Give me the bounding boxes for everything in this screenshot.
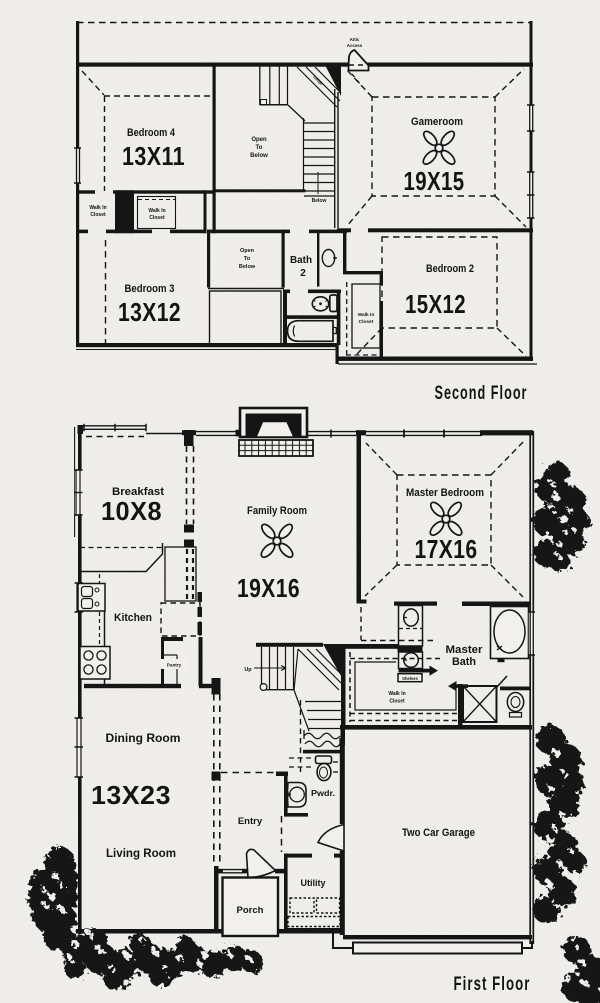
svg-text:Entry: Entry bbox=[238, 816, 263, 827]
svg-text:Closet: Closet bbox=[359, 319, 374, 325]
svg-text:17X16: 17X16 bbox=[415, 536, 478, 564]
svg-text:Bath: Bath bbox=[452, 656, 476, 668]
svg-text:Pwdr.: Pwdr. bbox=[311, 789, 335, 798]
svg-text:Access: Access bbox=[347, 43, 363, 48]
svg-text:Dining Room: Dining Room bbox=[106, 731, 181, 745]
svg-text:Walk In: Walk In bbox=[388, 691, 405, 697]
svg-text:Open: Open bbox=[240, 248, 255, 254]
svg-text:Below: Below bbox=[239, 264, 256, 270]
svg-text:Second Floor: Second Floor bbox=[435, 383, 528, 404]
svg-text:Master: Master bbox=[446, 644, 484, 656]
svg-text:Family Room: Family Room bbox=[247, 505, 307, 517]
svg-text:Breakfast: Breakfast bbox=[112, 486, 164, 498]
svg-text:Bedroom 2: Bedroom 2 bbox=[426, 263, 474, 275]
svg-text:Walk In: Walk In bbox=[89, 205, 106, 211]
svg-text:Walk In: Walk In bbox=[148, 208, 165, 214]
svg-text:13X12: 13X12 bbox=[118, 299, 181, 327]
svg-text:Bedroom 4: Bedroom 4 bbox=[127, 127, 176, 139]
svg-text:19X15: 19X15 bbox=[404, 168, 465, 196]
svg-text:Pantry: Pantry bbox=[167, 663, 182, 668]
svg-text:First Floor: First Floor bbox=[454, 974, 531, 995]
svg-text:To: To bbox=[244, 256, 251, 262]
svg-text:10X8: 10X8 bbox=[101, 498, 162, 526]
svg-text:13X23: 13X23 bbox=[91, 782, 171, 810]
svg-text:Closet: Closet bbox=[149, 215, 165, 221]
svg-text:19X16: 19X16 bbox=[237, 575, 300, 603]
svg-text:Living Room: Living Room bbox=[106, 846, 176, 860]
svg-text:Walk In: Walk In bbox=[358, 312, 375, 318]
svg-text:Two Car Garage: Two Car Garage bbox=[402, 827, 475, 839]
svg-text:13X11: 13X11 bbox=[122, 143, 185, 171]
svg-text:Bedroom 3: Bedroom 3 bbox=[125, 283, 175, 295]
svg-text:Shelves: Shelves bbox=[402, 676, 419, 681]
svg-text:Closet: Closet bbox=[90, 212, 106, 218]
svg-text:2: 2 bbox=[300, 268, 306, 279]
svg-text:15X12: 15X12 bbox=[405, 291, 466, 319]
svg-text:Gameroom: Gameroom bbox=[411, 116, 463, 128]
svg-text:Below: Below bbox=[250, 153, 268, 159]
svg-text:Closet: Closet bbox=[389, 699, 405, 705]
svg-text:Kitchen: Kitchen bbox=[114, 612, 152, 624]
svg-text:Utility: Utility bbox=[300, 878, 325, 888]
svg-text:Bath: Bath bbox=[290, 255, 312, 266]
svg-text:Below: Below bbox=[312, 198, 327, 204]
svg-text:Open: Open bbox=[251, 137, 267, 143]
svg-text:Master Bedroom: Master Bedroom bbox=[406, 487, 484, 499]
svg-text:Porch: Porch bbox=[237, 905, 264, 916]
svg-text:Attic: Attic bbox=[350, 37, 360, 42]
svg-text:To: To bbox=[256, 145, 263, 151]
svg-text:Up: Up bbox=[244, 667, 252, 673]
